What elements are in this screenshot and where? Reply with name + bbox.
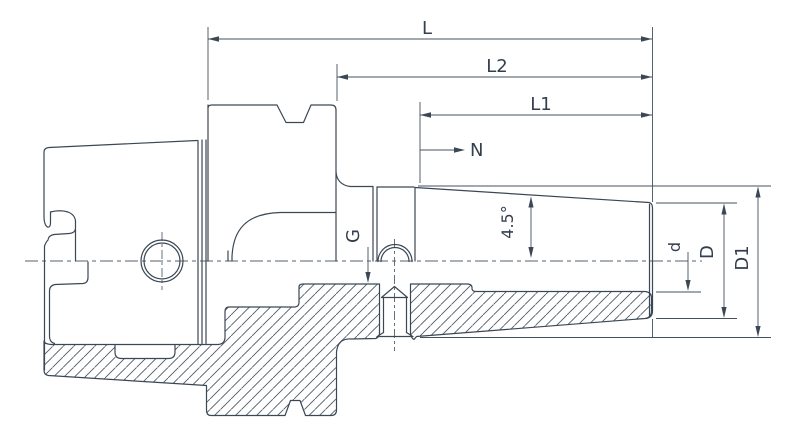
dim-label-d: d: [665, 242, 684, 252]
screw-hole-inner-arc: [381, 248, 409, 262]
arrowhead-D-bottom: [721, 307, 726, 318]
arrowhead-L2-left: [337, 74, 348, 79]
arrowhead-angle-bottom: [528, 247, 533, 258]
cavity-entry-step-edge: [50, 262, 89, 344]
arrowhead-G: [365, 272, 370, 283]
technical-drawing-page: L L2 L1 N 4.5° G d D: [0, 0, 812, 441]
arrowhead-D1-bottom: [755, 326, 760, 337]
dim-label-D: D: [697, 245, 718, 259]
section-left-body: [44, 284, 380, 416]
nose-taper-top-edge: [415, 188, 649, 203]
neck-fillet-and-top: [336, 172, 373, 187]
dim-label-L2: L2: [486, 56, 507, 77]
flange-top-and-groove: [208, 105, 336, 123]
internal-cavity-edges: [50, 262, 89, 344]
shank-drive-slot-hook: [44, 212, 51, 227]
flange-hub-fillet: [232, 213, 336, 258]
arrowhead-N: [454, 147, 465, 152]
shank-top-edge: [44, 141, 197, 153]
arrowhead-L-left: [208, 36, 219, 41]
dim-label-L1: L1: [530, 94, 551, 115]
cross-section-hatch: [44, 284, 652, 416]
shank-drive-slot-top: [51, 211, 76, 222]
dim-label-D1: D1: [732, 245, 753, 270]
section-right-nose: [411, 284, 652, 340]
shrink-fit-toolholder-drawing: L L2 L1 N 4.5° G d D: [0, 0, 812, 441]
arrowhead-D1-top: [755, 187, 760, 198]
dimensions: L L2 L1 N 4.5° G d D: [208, 18, 771, 338]
arrowhead-L-right: [641, 36, 652, 41]
dim-label-G: G: [343, 229, 364, 243]
shank-drive-slot-bottom: [45, 222, 76, 246]
set-screw: [377, 287, 413, 337]
arrowhead-angle-top: [528, 197, 533, 208]
arrowhead-L1-left: [420, 112, 431, 117]
set-screw-thread-feet: [378, 333, 412, 337]
dim-label-angle: 4.5°: [498, 205, 517, 238]
arrowhead-D-top: [721, 204, 726, 215]
arrowhead-L1-right: [641, 112, 652, 117]
dim-label-N: N: [470, 140, 483, 161]
dim-label-L: L: [422, 18, 432, 39]
arrowhead-L2-right: [641, 74, 652, 79]
arrowhead-d: [685, 280, 690, 291]
